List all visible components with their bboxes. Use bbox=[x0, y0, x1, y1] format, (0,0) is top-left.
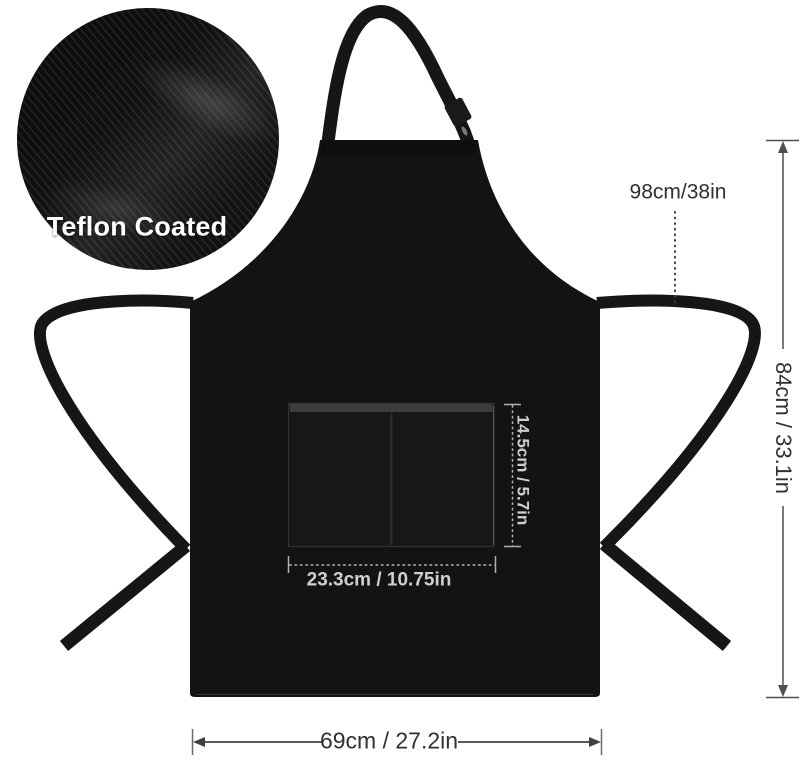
width-dimension-label: 69cm / 27.2in bbox=[320, 730, 458, 753]
pocket-height-dimension-label: 14.5cm / 5.7in bbox=[515, 415, 532, 526]
waist-tie-left-tail bbox=[64, 546, 186, 646]
fabric-callout-label: Teflon Coated bbox=[47, 214, 228, 241]
height-dimension-label: 84cm / 33.1in bbox=[772, 362, 794, 494]
pocket-opening-hem bbox=[290, 404, 493, 412]
front-pocket bbox=[289, 404, 495, 547]
waist-tie-right bbox=[597, 301, 755, 547]
pocket-width-dimension-label: 23.3cm / 10.75in bbox=[307, 571, 452, 590]
bib-top-hem bbox=[320, 140, 478, 155]
waist-tie-right-tail bbox=[604, 544, 727, 646]
diagram-canvas bbox=[0, 0, 800, 762]
arrowhead-down-icon bbox=[778, 685, 788, 697]
waist-tie-left bbox=[40, 301, 193, 549]
apron-dimension-diagram: Teflon Coated 98cm/38in 84cm / 33.1in 14… bbox=[0, 0, 800, 762]
arrowhead-right-icon bbox=[589, 737, 601, 747]
neck-strap bbox=[327, 12, 470, 150]
neck-strap-dimension-label: 98cm/38in bbox=[630, 182, 727, 203]
